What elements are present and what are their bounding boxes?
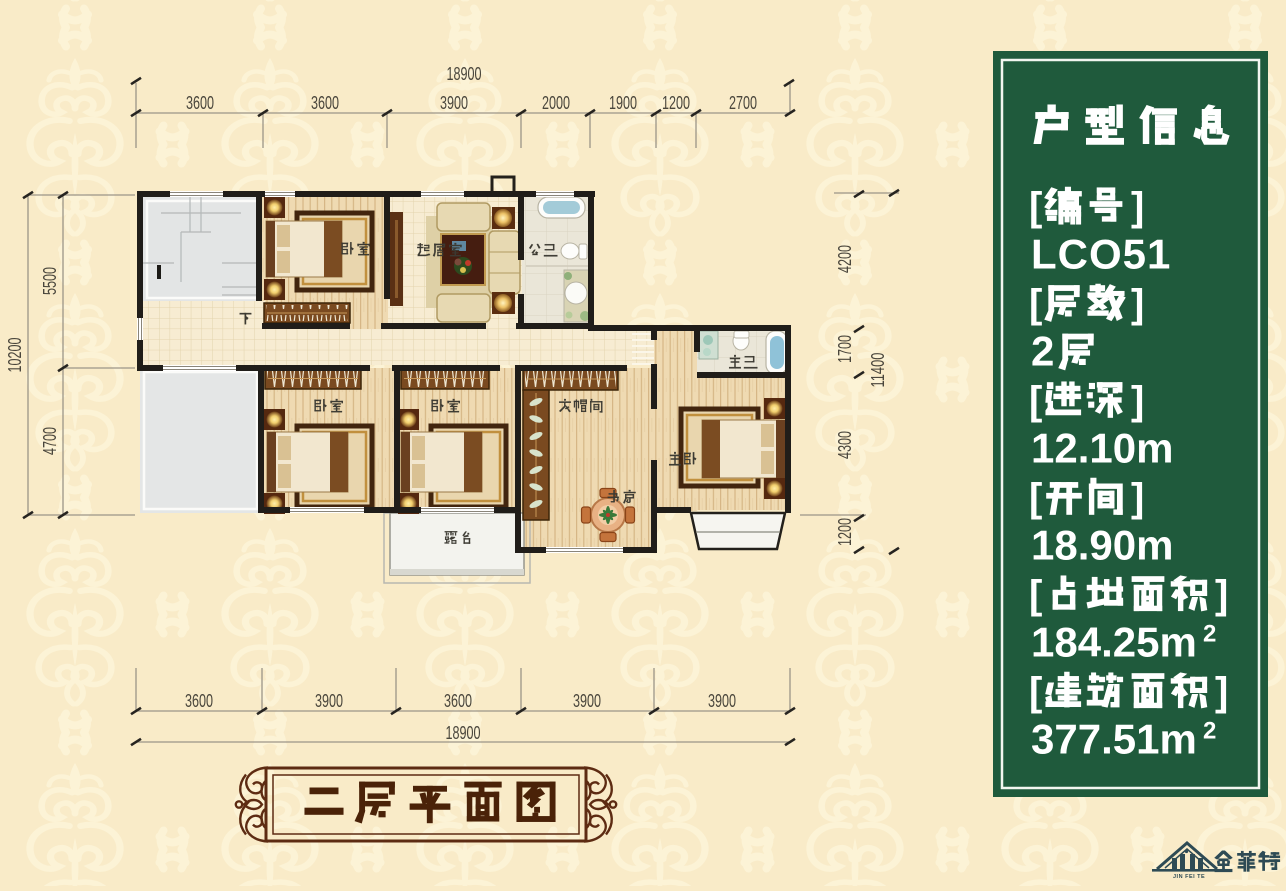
svg-text:[: [ — [1029, 282, 1042, 326]
svg-text:10200: 10200 — [5, 338, 25, 373]
svg-text:]: ] — [1131, 379, 1144, 423]
svg-text:1900: 1900 — [609, 93, 637, 113]
svg-text:]: ] — [1131, 185, 1144, 229]
svg-text:184.25m: 184.25m — [1031, 619, 1197, 666]
svg-text:JIN FEI TE: JIN FEI TE — [1173, 874, 1205, 880]
svg-text:[: [ — [1029, 670, 1042, 714]
svg-text:3600: 3600 — [185, 691, 213, 711]
svg-text:3600: 3600 — [186, 93, 214, 113]
svg-text:18900: 18900 — [446, 723, 481, 743]
svg-text:2: 2 — [1203, 621, 1216, 648]
svg-text:3600: 3600 — [444, 691, 472, 711]
svg-text:]: ] — [1131, 476, 1144, 520]
svg-text:]: ] — [1131, 282, 1144, 326]
svg-text:4700: 4700 — [40, 427, 60, 455]
svg-text:1200: 1200 — [662, 93, 690, 113]
svg-text:1200: 1200 — [835, 518, 855, 546]
svg-text:[: [ — [1029, 379, 1042, 423]
svg-text:LCO51: LCO51 — [1031, 231, 1171, 278]
svg-text:3600: 3600 — [311, 93, 339, 113]
svg-text:2700: 2700 — [729, 93, 757, 113]
svg-text:11400: 11400 — [868, 353, 888, 388]
svg-text:2: 2 — [1031, 328, 1054, 375]
svg-text:3900: 3900 — [440, 93, 468, 113]
svg-text:18900: 18900 — [447, 64, 482, 84]
svg-text:4200: 4200 — [835, 245, 855, 273]
svg-text:2: 2 — [1203, 718, 1216, 745]
svg-text:1700: 1700 — [835, 335, 855, 363]
svg-text:3900: 3900 — [708, 691, 736, 711]
svg-text:377.51m: 377.51m — [1031, 716, 1197, 763]
svg-text:12.10m: 12.10m — [1031, 425, 1173, 472]
svg-text:[: [ — [1029, 573, 1042, 617]
svg-text:3900: 3900 — [573, 691, 601, 711]
svg-text:4300: 4300 — [835, 431, 855, 459]
svg-text:18.90m: 18.90m — [1031, 522, 1173, 569]
svg-text:3900: 3900 — [315, 691, 343, 711]
svg-text:]: ] — [1215, 670, 1228, 714]
svg-text:5500: 5500 — [40, 267, 60, 295]
svg-text:2000: 2000 — [542, 93, 570, 113]
svg-text:[: [ — [1029, 185, 1042, 229]
svg-text:]: ] — [1215, 573, 1228, 617]
svg-text:[: [ — [1029, 476, 1042, 520]
